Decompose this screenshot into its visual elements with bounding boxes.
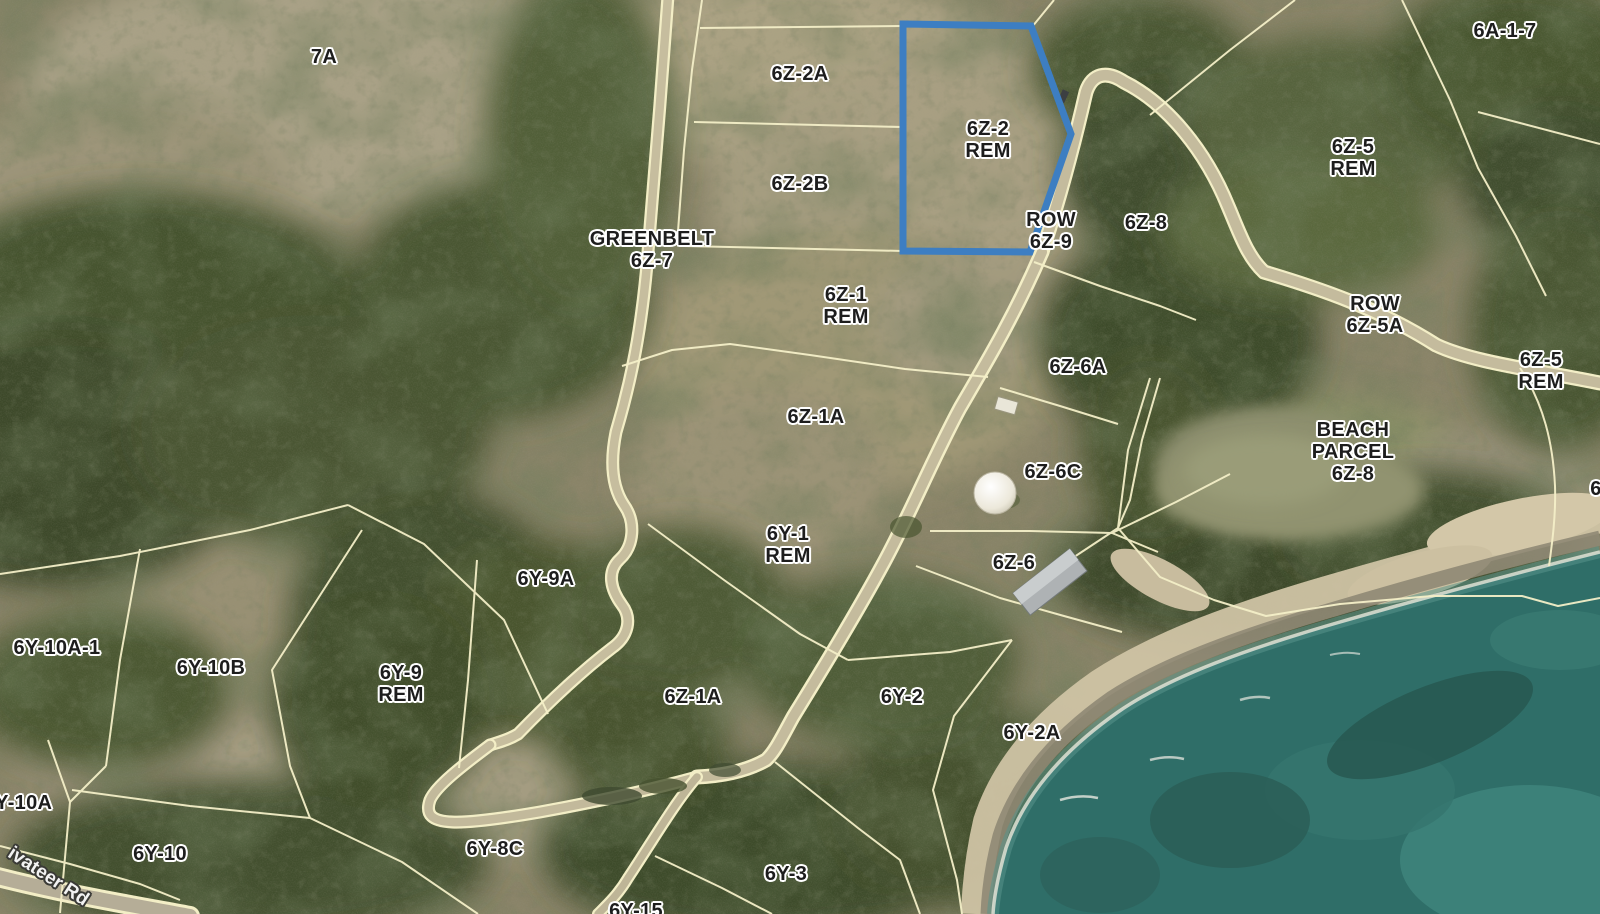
parcel-map-canvas[interactable]: 7A6Z-2A6Z-2REM6A-1-76Z-5REM6Z-2BGREENBEL… [0,0,1600,914]
aerial-basemap [0,0,1600,914]
